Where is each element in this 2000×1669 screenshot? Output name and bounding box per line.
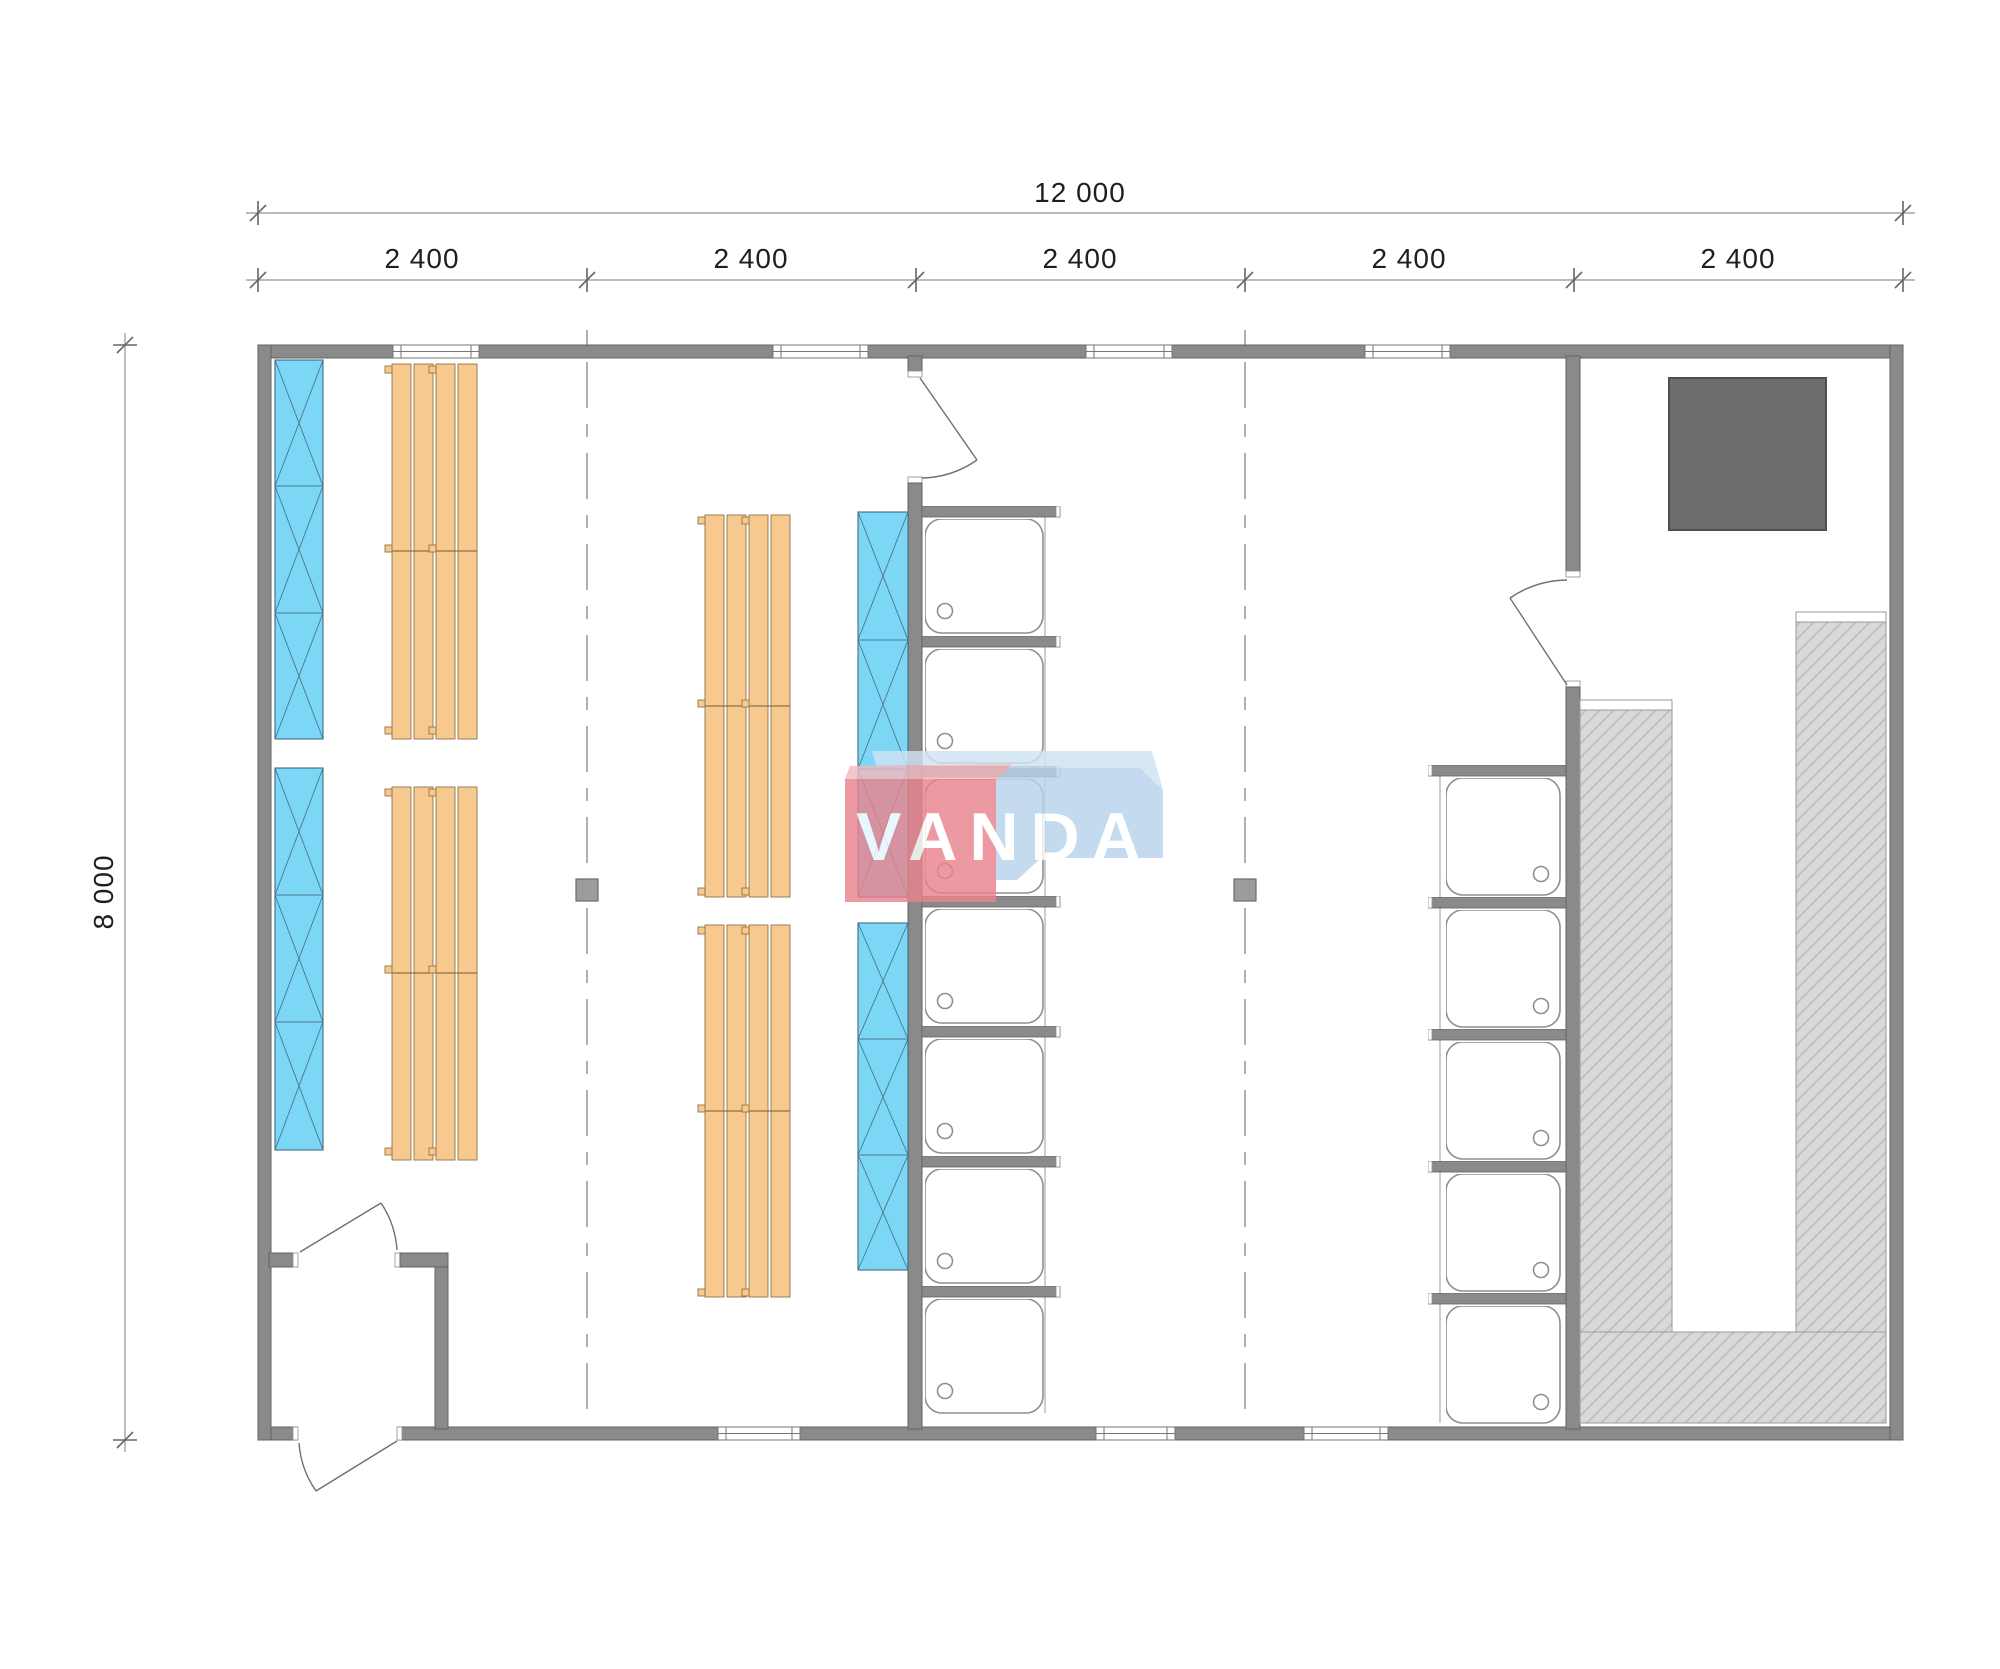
floor-plan-drawing: 12 000 2 400 2 400 2 400 2 400 2 400 8 0…	[0, 0, 2000, 1669]
sauna-door	[1510, 580, 1567, 685]
shower-column-right	[1428, 765, 1566, 1423]
wood-bench-group-middle	[698, 515, 790, 1297]
brand-watermark: VANDA	[845, 751, 1163, 902]
entrance-door	[299, 1441, 397, 1491]
sauna-room	[1580, 378, 1886, 1423]
shower-tray	[1446, 1042, 1560, 1159]
shower-partition-stub	[1428, 897, 1566, 908]
wood-bench-group-left	[385, 364, 477, 1160]
wall-right	[1890, 345, 1903, 1440]
shower-tray	[925, 1299, 1043, 1413]
bay-label-5: 2 400	[1700, 243, 1775, 274]
window	[1304, 1427, 1388, 1440]
shower-partition-stub	[922, 1286, 1060, 1297]
sauna-bench-right	[1796, 622, 1886, 1332]
shower-column-left	[922, 506, 1060, 1413]
shower-tray	[1446, 910, 1560, 1027]
bay-label-3: 2 400	[1042, 243, 1117, 274]
shower-tray	[1446, 778, 1560, 895]
window	[393, 345, 479, 358]
sauna-bench-bottom	[1580, 1332, 1886, 1423]
shower-partition-stub	[922, 506, 1060, 517]
column	[1234, 879, 1256, 901]
shower-partition-stub	[922, 636, 1060, 647]
window	[773, 345, 868, 358]
entrance-opening	[293, 1426, 402, 1441]
bay-label-4: 2 400	[1371, 243, 1446, 274]
floor-plan-page: 12 000 2 400 2 400 2 400 2 400 2 400 8 0…	[0, 0, 2000, 1669]
column	[576, 879, 598, 901]
overall-height-label: 8 000	[88, 854, 119, 929]
wall-top	[258, 345, 1903, 358]
shower-partition-stub	[922, 1156, 1060, 1167]
shower-partition-stub	[1428, 1161, 1566, 1172]
overall-width-label: 12 000	[1034, 177, 1126, 208]
wall-bottom	[258, 1427, 1903, 1440]
locker-bench-left-wall	[275, 360, 323, 1150]
shower-tray	[925, 649, 1043, 763]
shower-room-door	[920, 378, 977, 478]
shower-tray	[1446, 1306, 1560, 1423]
shower-partition-stub	[1428, 1029, 1566, 1040]
shower-tray	[925, 909, 1043, 1023]
window	[1096, 1427, 1175, 1440]
vestibule-door	[300, 1203, 397, 1252]
window	[718, 1427, 800, 1440]
brand-text: VANDA	[856, 799, 1153, 875]
shower-tray	[925, 1039, 1043, 1153]
shower-partition-stub	[922, 1026, 1060, 1037]
wall-left	[258, 345, 271, 1440]
window	[1365, 345, 1450, 358]
stove	[1669, 378, 1826, 530]
bay-label-2: 2 400	[713, 243, 788, 274]
shower-tray	[925, 1169, 1043, 1283]
window	[1086, 345, 1172, 358]
shower-partition-stub	[1428, 1293, 1566, 1304]
logo-red-top-face	[845, 764, 1012, 779]
shower-partition-stub	[1428, 765, 1566, 776]
sauna-bench-left	[1580, 710, 1672, 1332]
shower-tray	[1446, 1174, 1560, 1291]
bay-label-1: 2 400	[384, 243, 459, 274]
shower-tray	[925, 519, 1043, 633]
